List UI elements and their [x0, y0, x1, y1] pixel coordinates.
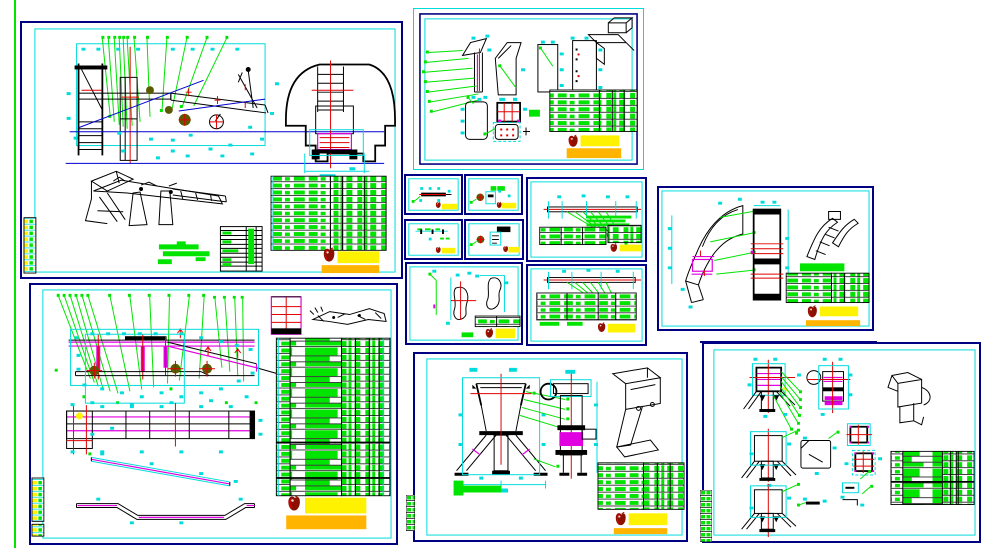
title-block	[322, 248, 380, 273]
sheet-hopper-parts	[702, 342, 981, 543]
title-bar-yellow	[620, 245, 641, 252]
red-seal-stamp-icon	[616, 512, 626, 525]
sheet-detail-c-art	[406, 221, 461, 258]
oval-part-2	[487, 278, 501, 309]
front-view	[455, 368, 548, 493]
trough-profile	[77, 498, 255, 525]
bom-table	[598, 463, 684, 510]
sheet-shaft-upper-art	[528, 179, 645, 260]
title-bar-orange	[286, 515, 366, 529]
revision-strip	[24, 218, 36, 273]
bom-table	[540, 225, 641, 244]
title-bar-orange	[567, 148, 622, 158]
isometric-slabs	[588, 18, 634, 64]
title-bar-yellow	[496, 329, 515, 339]
bom-table	[475, 316, 520, 327]
sheet-bracket-parts-art	[407, 264, 521, 343]
title-bar-yellow	[629, 513, 668, 525]
sheet-curved-chute-art	[659, 188, 872, 329]
drawing-canvas	[0, 0, 986, 548]
sub-table	[220, 227, 262, 271]
red-seal-stamp-icon	[436, 247, 441, 253]
bom-table	[276, 338, 390, 496]
title-bar-yellow	[608, 324, 635, 333]
hopper-part-f	[742, 483, 800, 537]
hopper-part-a	[744, 358, 802, 435]
title-bar-orange	[322, 265, 380, 273]
plan-view	[67, 403, 263, 454]
frame-border-line	[14, 0, 16, 548]
sheet-main-assembly	[20, 21, 403, 279]
sheet-bracket-parts	[405, 262, 523, 345]
front-view	[286, 61, 395, 179]
green-note-block	[529, 110, 540, 117]
title-bar-yellow	[820, 306, 858, 316]
notes-text	[158, 241, 210, 264]
sheet-detail-b-art	[466, 176, 521, 213]
sheet-hopper-parts-art	[704, 344, 979, 541]
title-bar-yellow	[442, 204, 457, 210]
sheet-detail-d	[464, 219, 524, 260]
detail-box	[271, 297, 301, 334]
sheet-shaft-upper	[526, 177, 647, 262]
red-seal-stamp-icon	[569, 135, 578, 147]
red-seal-stamp-icon	[503, 246, 508, 252]
isometric-view	[613, 368, 660, 457]
dotted-box-part	[483, 123, 530, 142]
isometric-view	[85, 171, 226, 225]
grid-box-1	[846, 424, 872, 446]
bom-table	[550, 90, 637, 131]
hopper-part-c	[742, 429, 800, 487]
red-seal-stamp-icon	[497, 202, 502, 208]
title-bar-orange	[614, 528, 667, 534]
plate-part-d	[801, 431, 840, 475]
sheet-frame-assembly	[29, 283, 398, 545]
red-grid-box-part	[497, 98, 527, 123]
sheet-shaft-lower-art	[528, 266, 645, 344]
title-bar-yellow	[305, 498, 366, 514]
sheet-detail-b	[464, 174, 523, 215]
isometric-sketch	[310, 307, 386, 325]
red-seal-stamp-icon	[598, 323, 605, 332]
sheet-hopper-assembly-art	[415, 354, 686, 540]
title-block	[614, 512, 667, 534]
elbow-part	[495, 43, 525, 101]
red-seal-stamp-icon	[486, 328, 493, 337]
bent-strip-part	[422, 35, 491, 113]
title-block	[806, 306, 860, 326]
sheet-hopper-assembly	[413, 352, 688, 542]
inclined-bar	[88, 452, 237, 485]
profile-view	[668, 198, 756, 309]
red-seal-stamp-icon	[808, 306, 817, 318]
title-block	[286, 496, 366, 530]
grid-box-2	[844, 450, 882, 475]
rounded-box-part	[461, 96, 488, 139]
sheet-shaft-lower	[526, 264, 647, 346]
title-bar-yellow	[502, 203, 516, 209]
bracket-part-2	[841, 485, 874, 507]
sheet-panel-parts	[413, 8, 644, 170]
title-bar-yellow	[338, 251, 380, 263]
isometric-view	[807, 212, 858, 260]
title-bar-yellow	[581, 135, 620, 146]
sheet-detail-d-art	[466, 221, 522, 258]
bom-table	[271, 176, 386, 250]
front-view	[751, 201, 789, 300]
red-seal-stamp-icon	[436, 202, 441, 208]
red-seal-stamp-icon	[324, 248, 335, 262]
revision-strip-hopper-assembly	[406, 495, 415, 531]
bom-table	[786, 273, 869, 302]
rect-part-2	[571, 37, 603, 97]
red-seal-stamp-icon	[288, 496, 300, 511]
title-bar-orange	[806, 320, 860, 326]
green-note-block	[462, 332, 474, 337]
title-bar-yellow	[442, 248, 455, 254]
red-seal-stamp-icon	[611, 243, 618, 251]
oval-part-1	[451, 281, 476, 320]
revision-strip	[32, 478, 44, 521]
sheet-main-assembly-art	[22, 23, 401, 277]
title-bar-yellow	[508, 247, 520, 253]
title-block	[567, 135, 622, 158]
bom-table	[891, 451, 974, 504]
sheet-detail-c	[404, 219, 463, 260]
isometric-view	[888, 373, 930, 425]
sheet-detail-a	[404, 174, 463, 215]
rect-part-1	[538, 41, 564, 92]
sheet-detail-a-art	[406, 176, 461, 213]
bom-table	[537, 293, 636, 326]
elevation-view	[69, 328, 285, 406]
sheet-frame-assembly-art	[31, 285, 396, 543]
sheet-curved-chute	[657, 186, 874, 331]
hopper-part-b	[807, 358, 853, 416]
green-note-block	[454, 481, 501, 496]
side-view	[66, 36, 384, 163]
sheet-panel-parts-art	[414, 9, 643, 169]
revision-strip-hopper-parts	[700, 490, 712, 542]
small-strip-part	[797, 498, 827, 507]
